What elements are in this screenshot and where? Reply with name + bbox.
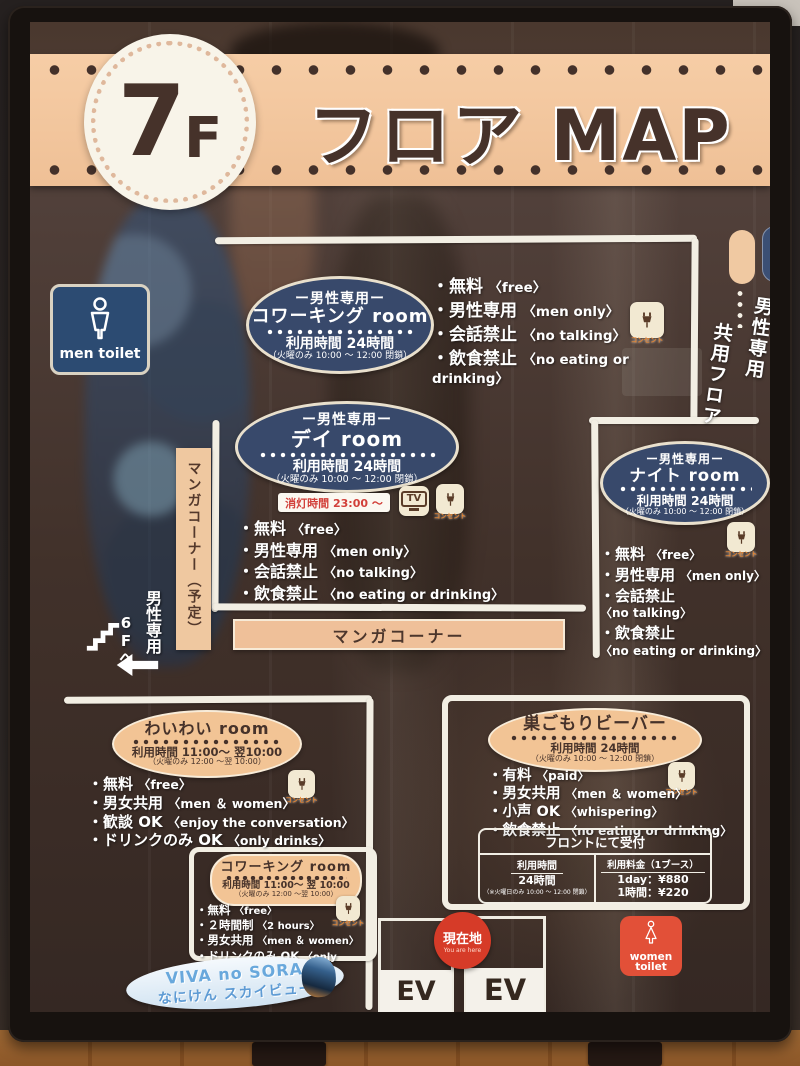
rule-jp: ２時間制: [208, 918, 254, 932]
rule-en: 〈men ＆ women〉: [257, 936, 359, 947]
rule-jp: 会話禁止: [449, 325, 517, 345]
manga-corner-bar: マンガコーナー: [233, 619, 565, 650]
room-hours: 利用時間 24時間: [286, 337, 394, 352]
room-note: （火曜のみ 10:00 ～ 12:00 閉鎖）: [268, 352, 412, 362]
rule-en: 〈paid〉: [536, 769, 589, 783]
rule-item: 会話禁止 〈no talking〉: [238, 563, 548, 582]
men-toilet-label: men toilet: [59, 346, 140, 362]
rule-en: 〈men ＆ women〉: [168, 796, 295, 811]
rule-item: 男女共用 〈men ＆ women〉: [196, 934, 366, 947]
legend-men-pill: [762, 226, 770, 282]
you-are-here-label: 現在地: [443, 928, 482, 947]
rule-item: 飲食禁止 〈no eating or drinking〉: [238, 585, 548, 604]
room-note: （火曜のみ 12:00 ～翌 10:00）: [234, 891, 337, 899]
page-title: フロア MAP: [280, 80, 760, 181]
rule-en: 〈free〉: [291, 523, 347, 538]
rule-jp: 男性専用: [449, 301, 517, 321]
rule-item: 飲食禁止〈no eating or drinking〉: [600, 625, 770, 659]
coworking-top-room-badge: ー男性専用ー コワーキング room 利用時間 24時間 （火曜のみ 10:00…: [246, 276, 434, 374]
rule-item: 有料 〈paid〉: [488, 768, 738, 784]
reception-fee-header: 利用料金（1ブース）: [601, 857, 705, 873]
you-are-here-badge: 現在地 You are here: [434, 912, 491, 969]
manga-corner-planned-strip: マンガコーナー（予定）: [176, 448, 211, 650]
waiwai-room-badge: わいわい room 利用時間 11:00～ 翌10:00 （火曜のみ 12:00…: [112, 710, 302, 778]
lights-out-pill: 消灯時間 23:00 ～: [278, 493, 390, 512]
rule-jp: 小声 OK: [503, 804, 561, 820]
floor-map-poster: 7 F フロア MAP 共用フロア 男性専用 men toilet ー男性専用ー…: [30, 22, 770, 1012]
reception-title: フロントにて受付: [480, 830, 710, 855]
reception-fee-1hour: 1時間：¥220: [617, 886, 688, 899]
rule-en: 〈men only〉: [522, 304, 619, 320]
rule-en: 〈men only〉: [323, 545, 416, 560]
rule-en: 〈2 hours〉: [257, 921, 319, 932]
rule-item: 男性専用 〈men only〉: [238, 542, 548, 561]
rule-item: ２時間制 〈2 hours〉: [196, 919, 366, 932]
room-note: （火曜のみ 12:00 ～翌 10:00）: [148, 758, 266, 767]
outlet-label: コンセント: [434, 510, 467, 520]
rule-en: 〈free〉: [488, 280, 546, 296]
rule-jp: 男性専用: [254, 541, 318, 560]
room-note: （火曜のみ 10:00 ～ 12:00 閉鎖）: [271, 475, 423, 485]
elevator-2-label: EV: [466, 968, 544, 1012]
rule-item: 無料 〈free〉: [432, 278, 690, 297]
reception-hours-header: 利用時間: [511, 857, 563, 874]
rule-item: 男女共用 〈men ＆ women〉: [88, 795, 388, 812]
floor-letter: F: [184, 111, 222, 167]
rule-jp: 男女共用: [208, 933, 254, 947]
rule-jp: 無料: [449, 277, 483, 297]
rule-en: 〈free〉: [650, 548, 701, 562]
outlet-icon: コンセント: [630, 302, 664, 344]
reception-fee-column: 利用料金（1ブース） 1day：¥880 1時間：¥220: [594, 855, 710, 902]
room-note: （火曜のみ 10:00 ～ 12:00 閉鎖）: [621, 508, 749, 517]
night-room-badge: ー男性専用ー ナイト room 利用時間 24時間 （火曜のみ 10:00 ～ …: [600, 441, 770, 525]
rule-en: 〈no eating or drinking〉: [600, 644, 767, 658]
rule-jp: 男性専用: [615, 566, 675, 584]
rule-item: ドリンクのみ OK 〈only drinks〉: [88, 832, 388, 849]
rule-jp: 無料: [615, 545, 645, 563]
rule-en: 〈men ＆ women〉: [565, 787, 687, 801]
room-hours: 利用時間 24時間: [637, 494, 734, 508]
day-room-badge: ー男性専用ー デイ room 利用時間 24時間 （火曜のみ 10:00 ～ 1…: [235, 401, 459, 493]
rule-item: 無料 〈free〉: [238, 520, 548, 539]
rule-en: 〈no talking〉: [600, 606, 692, 620]
sign-leg-left: [252, 1042, 326, 1066]
rule-item: 男性専用 〈men only〉: [600, 567, 770, 584]
reception-hours-value: 24時間: [518, 874, 555, 887]
rule-en: 〈men only〉: [680, 569, 766, 583]
legend-shared-pill: [729, 230, 755, 284]
rule-item: 男女共用 〈men ＆ women〉: [488, 786, 738, 802]
rule-jp: 飲食禁止: [449, 349, 517, 369]
day-room-rules: 無料 〈free〉 男性専用 〈men only〉 会話禁止 〈no talki…: [238, 520, 548, 603]
rule-en: 〈no talking〉: [522, 328, 626, 344]
rule-jp: 飲食禁止: [615, 624, 675, 642]
rule-jp: 会話禁止: [615, 587, 675, 605]
elevator-1-label: EV: [380, 970, 452, 1012]
wall-day-bottom: [212, 603, 586, 611]
tv-icon: TV: [399, 486, 429, 516]
women-toilet-badge: women toilet: [620, 916, 682, 976]
rule-item: 飲食禁止 〈no eating or drinking〉: [432, 350, 690, 388]
dotted-divider: [618, 486, 752, 492]
rule-jp: 歓談 OK: [103, 813, 163, 831]
rule-en: 〈no talking〉: [323, 566, 423, 581]
waiwai-room-rules: 無料 〈free〉 男女共用 〈men ＆ women〉 歓談 OK 〈enjo…: [88, 776, 388, 849]
rule-jp: 無料: [103, 775, 133, 793]
rule-jp: 飲食禁止: [254, 584, 318, 603]
room-name: コワーキング room: [251, 308, 428, 327]
rule-item: 小声 OK 〈whispering〉: [488, 804, 738, 820]
room-hours: 利用時間 24時間: [293, 460, 401, 475]
rule-item: 無料 〈free〉: [196, 904, 366, 917]
room-name: わいわい room: [144, 721, 269, 738]
rule-jp: 無料: [254, 519, 286, 538]
dotted-divider: [265, 329, 414, 335]
reception-table: フロントにて受付 利用時間 24時間 （※火曜日のみ 10:00 ～ 12:00…: [478, 828, 712, 904]
rule-en: 〈enjoy the conversation〉: [167, 815, 354, 830]
room-hours: 利用時間 24時間: [550, 742, 639, 755]
rule-en: 〈no eating or drinking〉: [323, 588, 504, 603]
rule-en: 〈whispering〉: [565, 805, 664, 819]
legend-shared-leader-dots: [737, 288, 743, 328]
rule-jp: 男女共用: [503, 786, 561, 802]
left-arrow-icon: [114, 652, 160, 682]
rule-en: 〈only drinks〉: [227, 833, 330, 848]
you-are-here-sub: You are here: [444, 947, 481, 954]
rule-jp: 会話禁止: [254, 562, 318, 581]
room-name: コワーキング room: [221, 861, 352, 875]
women-person-icon: [640, 920, 662, 952]
reception-fee-1day: 1day：¥880: [617, 873, 688, 886]
rule-item: 無料 〈free〉: [600, 546, 770, 563]
floor-number-badge: 7 F: [84, 34, 256, 210]
room-tag: ー男性専用ー: [302, 409, 392, 429]
tv-label: TV: [401, 491, 428, 507]
men-person-icon: [85, 297, 115, 345]
outlet-label: コンセント: [631, 334, 664, 344]
room-tag: ー男性専用ー: [295, 288, 385, 308]
room-name: 巣ごもりビーバー: [523, 716, 667, 734]
rule-item: 無料 〈free〉: [88, 776, 388, 793]
outlet-icon: コンセント: [436, 484, 464, 520]
rule-jp: 無料: [208, 903, 231, 917]
rule-item: 会話禁止 〈no talking〉: [600, 588, 770, 622]
person-reflection-shirt: [85, 197, 250, 667]
women-toilet-label-2: toilet: [635, 962, 667, 973]
rule-en: 〈free〉: [234, 906, 277, 917]
night-room-rules: 無料 〈free〉 男性専用 〈men only〉 会話禁止 〈no talki…: [600, 546, 770, 659]
room-name: ナイト room: [629, 467, 740, 484]
wall-night-top: [589, 417, 759, 424]
floor-number: 7: [118, 73, 186, 171]
rule-en: 〈free〉: [138, 777, 192, 792]
wall-day-left: [211, 420, 219, 612]
room-note: （火曜のみ 10:00 ～ 12:00 閉鎖）: [531, 755, 659, 764]
men-toilet-badge: men toilet: [50, 284, 150, 375]
sign-leg-right: [588, 1042, 662, 1066]
rule-jp: ドリンクのみ OK: [103, 831, 223, 849]
room-name: デイ room: [291, 429, 403, 450]
rule-jp: 男女共用: [103, 794, 163, 812]
wall-top-right: [690, 238, 698, 423]
dotted-divider: [258, 452, 437, 458]
stairs-label-men: 男性専用: [140, 590, 164, 654]
rule-item: 歓談 OK 〈enjoy the conversation〉: [88, 814, 388, 831]
rule-jp: 有料: [503, 768, 532, 784]
reception-hours-note: （※火曜日のみ 10:00 ～ 12:00 閉鎖）: [483, 887, 590, 896]
dotted-divider: [131, 739, 284, 745]
reception-hours-column: 利用時間 24時間 （※火曜日のみ 10:00 ～ 12:00 閉鎖）: [480, 855, 594, 902]
room-tag: ー男性専用ー: [646, 450, 724, 467]
